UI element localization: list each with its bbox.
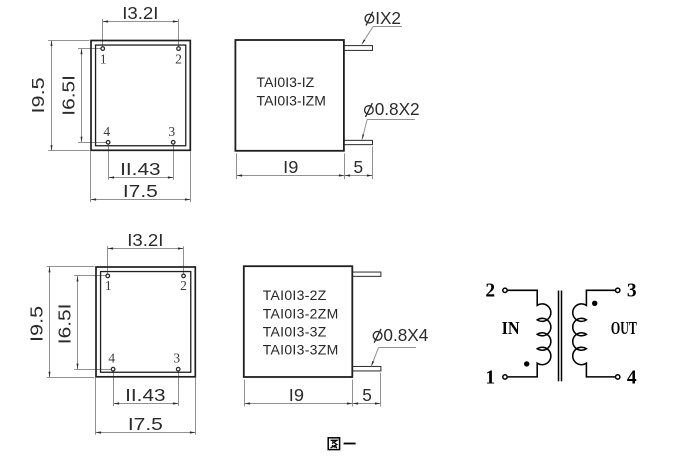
svg-text:TAI0I3-3Z: TAI0I3-3Z bbox=[263, 324, 327, 340]
svg-text:I6.5I: I6.5I bbox=[58, 75, 78, 116]
svg-text:TAI0I3-2ZM: TAI0I3-2ZM bbox=[263, 305, 339, 321]
svg-text:I9.5: I9.5 bbox=[26, 306, 46, 342]
svg-text:I7.5: I7.5 bbox=[128, 414, 163, 434]
svg-text:2: 2 bbox=[175, 52, 182, 67]
svg-text:I7.5: I7.5 bbox=[123, 181, 158, 201]
svg-text:0.8X4: 0.8X4 bbox=[383, 325, 428, 345]
svg-text:TAI0I3-IZM: TAI0I3-IZM bbox=[257, 92, 326, 108]
svg-text:TAI0I3-IZ: TAI0I3-IZ bbox=[257, 74, 315, 90]
svg-text:I3.2I: I3.2I bbox=[122, 3, 158, 23]
svg-text:TAI0I3-2Z: TAI0I3-2Z bbox=[263, 287, 327, 303]
svg-text:IN: IN bbox=[502, 318, 520, 338]
svg-text:3: 3 bbox=[627, 281, 637, 302]
svg-text:2: 2 bbox=[485, 281, 495, 302]
svg-text:4: 4 bbox=[627, 367, 637, 388]
svg-text:IX2: IX2 bbox=[375, 8, 401, 28]
svg-text:I6.5I: I6.5I bbox=[55, 304, 75, 345]
svg-text:5: 5 bbox=[354, 157, 364, 177]
svg-text:3: 3 bbox=[173, 350, 180, 365]
svg-text:I9: I9 bbox=[289, 385, 304, 405]
svg-text:I9.5: I9.5 bbox=[28, 77, 48, 113]
svg-text:TAI0I3-3ZM: TAI0I3-3ZM bbox=[263, 342, 339, 358]
svg-text:4: 4 bbox=[108, 350, 115, 365]
svg-text:1: 1 bbox=[105, 278, 112, 293]
svg-text:OUT: OUT bbox=[611, 318, 637, 338]
svg-text:I3.2I: I3.2I bbox=[127, 230, 163, 250]
svg-text:3: 3 bbox=[168, 124, 175, 139]
svg-text:2: 2 bbox=[180, 278, 187, 293]
svg-text:1: 1 bbox=[100, 52, 107, 67]
svg-text:I9: I9 bbox=[283, 157, 298, 177]
svg-text:0.8X2: 0.8X2 bbox=[375, 99, 420, 119]
svg-text:4: 4 bbox=[103, 124, 110, 139]
svg-text:5: 5 bbox=[362, 385, 372, 405]
svg-text:II.43: II.43 bbox=[125, 385, 165, 405]
svg-text:1: 1 bbox=[485, 367, 495, 388]
svg-text:II.43: II.43 bbox=[120, 159, 160, 179]
